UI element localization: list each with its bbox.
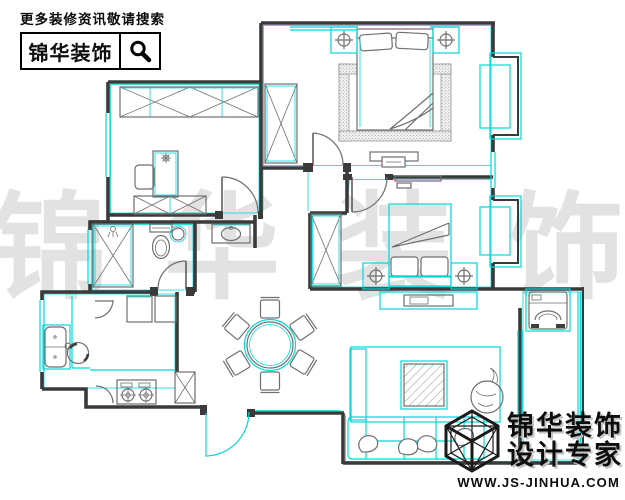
small-basin (170, 226, 186, 242)
magnifier-icon (128, 39, 152, 63)
entry-door (205, 412, 249, 456)
sofa-pillow (357, 433, 380, 453)
floorplan-poster: 锦华装饰 (0, 0, 625, 500)
sofa-pillow (399, 439, 418, 455)
tv-cabinet (380, 292, 477, 309)
header-search-badge: 更多装修资讯敬请搜索 锦华装饰 (20, 8, 165, 70)
room-study (120, 87, 258, 214)
website-url: WWW.JS-JINHUA.COM (457, 475, 620, 490)
washing-machine (526, 289, 570, 331)
low-bookcase (134, 196, 206, 214)
study-door (222, 177, 258, 213)
nightstand-left (363, 263, 389, 289)
toilet (150, 224, 172, 259)
bay-window-frame-bedroom2 (493, 200, 518, 263)
double-sink (43, 325, 71, 369)
cube-frame-logo-icon (442, 408, 502, 474)
gas-stove (117, 380, 156, 404)
study-west-window (106, 113, 110, 177)
round-bowl (68, 343, 89, 364)
sofa-pillow (416, 434, 438, 454)
bed (389, 204, 451, 286)
bay-window-bedroom2-sill (480, 207, 510, 255)
kitchen-pass-door (95, 300, 113, 318)
pillow (421, 257, 448, 276)
room-bathroom (93, 224, 250, 287)
corner-shelf (96, 386, 113, 403)
dining-chair (261, 372, 280, 393)
pillow (391, 257, 418, 276)
master-bedroom-door (313, 133, 343, 165)
company-logo: 锦华装饰 设计专家 (442, 408, 623, 474)
bathroom-door (158, 261, 186, 289)
dining-chair (261, 298, 280, 319)
nightstand-left (331, 27, 357, 53)
pillow (396, 32, 429, 50)
round-table (245, 320, 296, 371)
wall-cabinets (127, 296, 176, 322)
room-dining (222, 298, 317, 393)
nightstand-right (451, 263, 477, 289)
bathroom-west-window (88, 230, 92, 284)
shower-cabin (93, 224, 133, 287)
room-second-bedroom (311, 176, 477, 289)
desk-chair (135, 165, 154, 189)
second-bedroom-door (352, 177, 387, 212)
wardrobe (311, 214, 341, 286)
desk-lamp (161, 153, 171, 163)
pillow (359, 33, 392, 51)
search-button[interactable] (121, 34, 159, 68)
logo-line2: 设计专家 (507, 441, 623, 470)
plant-pot (471, 368, 503, 413)
coffee-table (401, 361, 447, 409)
master-east-window (491, 152, 495, 188)
wardrobe (265, 84, 297, 163)
room-balcony (526, 289, 570, 331)
dining-chair (289, 314, 317, 341)
chaise-bench (350, 349, 366, 420)
bay-window-master-outline (490, 53, 521, 139)
vanity-washbasin (212, 224, 250, 243)
wardrobe (120, 87, 258, 117)
room-master-bedroom (265, 27, 459, 167)
nightstand-right (433, 27, 459, 53)
search-box[interactable]: 锦华装饰 (20, 32, 161, 70)
double-bed (357, 29, 433, 130)
brand-name: 锦华装饰 (22, 34, 121, 68)
logo-line1: 锦华装饰 (507, 412, 623, 441)
logo-text: 锦华装饰 设计专家 (507, 412, 623, 470)
bay-window-frame-master (493, 57, 518, 135)
tv-cabinet (370, 152, 418, 167)
promo-text: 更多装修资讯敬请搜索 (20, 8, 165, 28)
bay-window-master-sill (480, 65, 510, 128)
flue-duct (175, 372, 195, 403)
